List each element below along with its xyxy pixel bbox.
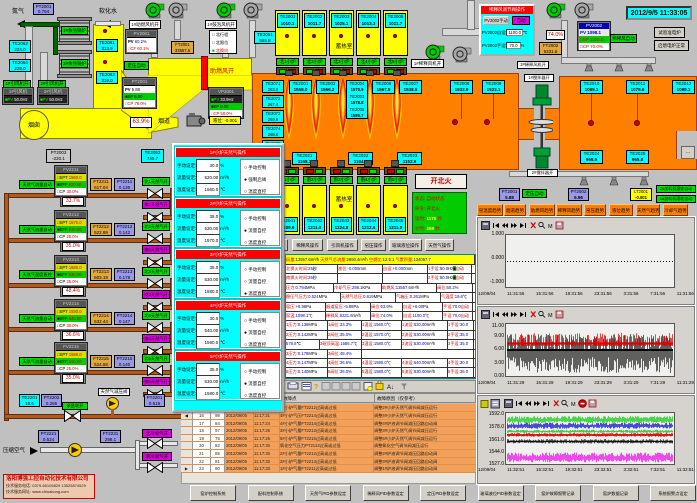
- svg-text:M: M: [548, 224, 553, 230]
- svg-text:?: ?: [314, 384, 318, 391]
- svg-text:M: M: [548, 313, 553, 319]
- svg-text:M: M: [571, 402, 576, 408]
- svg-text:A↓: A↓: [387, 385, 394, 391]
